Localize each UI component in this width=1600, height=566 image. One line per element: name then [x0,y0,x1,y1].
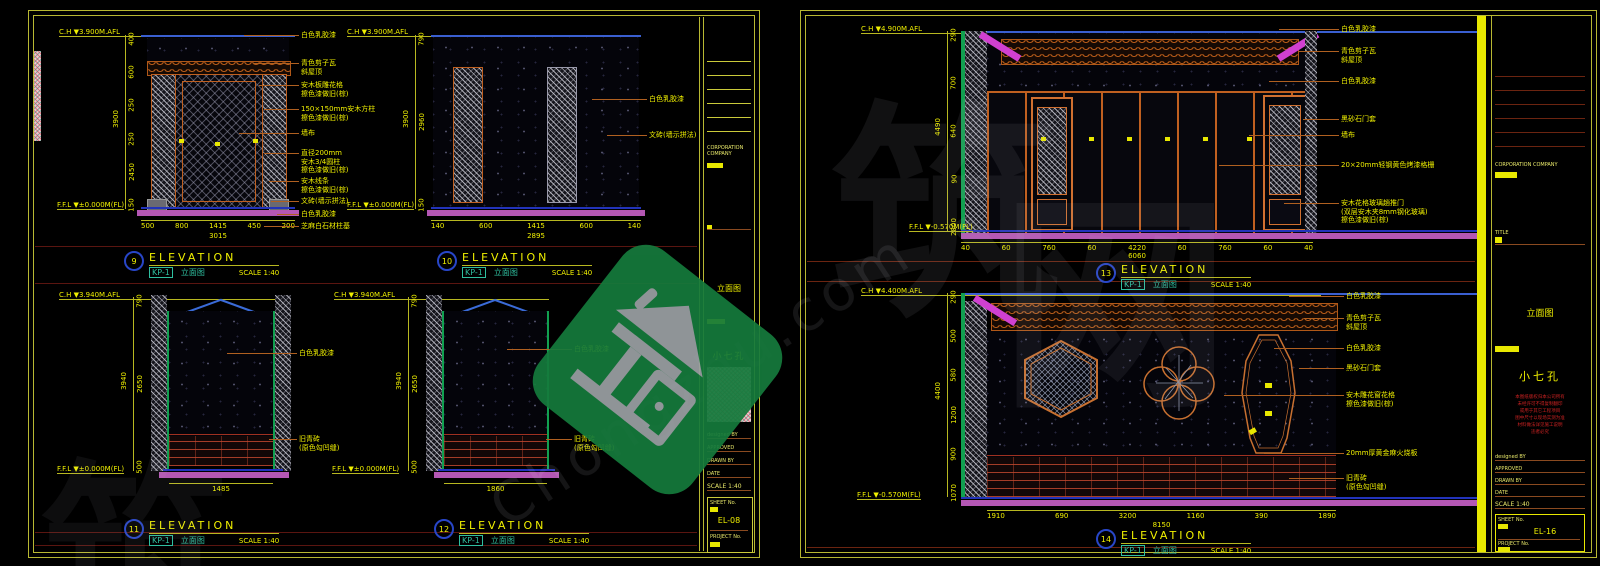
drawing-tag-cn: 立面图 [1153,545,1177,556]
title-label: TITLE [1495,230,1509,236]
field-drawn-by: DRAWN BY [707,458,751,465]
dim-marker [1247,137,1252,141]
tb-line [707,89,751,90]
edge-hatch-strip [34,51,41,141]
hexagon-lattice-window [1021,339,1101,419]
dim-marker [1041,137,1046,141]
scale-label: SCALE 1:40 [239,537,279,545]
level-marker-ffl: F.F.L ▼-0.570M(FL) [909,223,973,232]
dim-value: 290 [950,290,958,303]
floor-line [163,469,283,471]
el11-title: 11 ELEVATION KP-1 立面图 SCALE 1:40 [124,519,279,546]
drawing-number-badge: 14 [1096,529,1116,549]
annotation: 黑砂石门套 [1341,115,1376,124]
tile-frieze [991,303,1338,331]
floor-line [961,497,1477,499]
dim-value: 690 [1055,512,1068,520]
annotation: 白色乳胶漆 [1341,77,1376,86]
annotation: 白色乳胶漆 [649,95,684,104]
dim-value: 790 [411,294,419,307]
dim-value: 60 [1263,244,1272,252]
el14-title: 14 ELEVATION KP-1 立面图 SCALE 1:40 [1096,529,1251,556]
titleblock-right: CORPORATION COMPANY TITLE 立面图 小七孔 本图纸版权归… [1495,16,1590,552]
tb-line [707,131,751,132]
ceiling-band [147,38,289,61]
annotation: 芝麻白石材柱基 [301,222,350,231]
elevation-title: ELEVATION [1121,529,1251,544]
level-line [861,295,1321,296]
dim-value: 800 [175,222,188,230]
wainscot-line [987,455,1336,456]
tb-block [1498,547,1510,551]
drawing-tag: KP-1 [459,535,483,546]
drawing-number-badge: 9 [124,251,144,271]
vertical-dims: 790 2650 500 [133,297,146,471]
base-strip [961,233,1477,239]
column-hatch [965,31,987,237]
dim-value: 1860 [444,485,547,493]
dim-total: 8150 [987,521,1336,529]
floor-line [438,469,555,471]
dim-value: 500 [141,222,154,230]
dim-value: 250 [128,132,136,145]
wall-speckle [169,311,273,436]
wall-speckle [444,311,547,436]
annotation: 青色剪子瓦 斜屋顶 [301,59,336,76]
field-scale: SCALE 1:40 [1495,502,1585,509]
titleblock-left: CORPORATION COMPANY 立面图 小七孔 designed BY … [707,17,755,551]
dim-value: 600 [479,222,492,230]
el9-title: 9 ELEVATION KP-1 立面图 SCALE 1:40 [124,251,279,278]
drawing-tag-cn: 立面图 [181,267,205,278]
logo-gong-stem [598,346,641,396]
dim-line [431,220,641,221]
dim-value: 2800 [950,218,958,236]
sheet-right: C.H ▼4.900M.AFL F.F.L ▼-0.570M(FL) 290 7… [800,10,1597,558]
scale-label: SCALE 1:40 [1211,547,1251,555]
annotation: 墙布 [301,129,315,138]
dim-value: 250 [128,99,136,112]
divider-line [807,261,1475,262]
annotation: 安木花格玻璃趟推门 (双层安木夹8mm钢化玻璃) 擦色漆做旧(棕) [1341,199,1428,225]
drawing-tag-cn: 立面图 [491,535,515,546]
drawing-tag-cn: 立面图 [181,535,205,546]
level-marker-ffl: F.F.L ▼±0.000M(FL) [332,465,399,474]
tb-line [1495,244,1585,245]
vertical-dims: 790 2650 500 [408,297,421,471]
tile-frieze [1001,39,1299,65]
dim-value: 3200 [1119,512,1137,520]
divider-line [35,246,697,247]
dim-value: 900 [950,447,958,460]
tb-block [1495,237,1502,243]
dim-value: 140 [431,222,444,230]
dim-value: 140 [628,222,641,230]
elevation-title: ELEVATION [149,251,279,266]
annotation: 墙布 [1341,131,1355,140]
sheet-no-label: SHEET No. [710,500,736,506]
dim-value: 150 [128,198,136,211]
window-lower-panel [1037,199,1067,225]
project-name: 小七孔 [1495,368,1585,384]
annotation: 白色乳胶漆 [1341,25,1376,34]
sheet-number: EL-08 [708,516,750,525]
level-marker-ffl: F.F.L ▼-0.570M(FL) [857,491,921,500]
drawing-tag: KP-1 [462,267,486,278]
company-name: CORPORATION COMPANY [707,145,751,157]
dim-marker [1089,137,1094,141]
dim-line [169,483,273,484]
tb-block [1495,346,1519,352]
drawing-type-label: 立面图 [1495,306,1585,319]
annotation: 旧青砖 (原色勾凹缝) [1346,474,1386,491]
dim-marker [1165,137,1170,141]
logo-dot-icon [653,400,666,413]
column-hatch [965,301,987,499]
level-marker-ffl: F.F.L ▼±0.000M(FL) [57,465,124,474]
dim-value: 90 [950,175,958,184]
tb-block [710,507,718,512]
elevation-title: ELEVATION [462,251,592,266]
annotation: 安木线条 擦色漆做旧(棕) [301,177,348,194]
brick-wainscot [444,436,547,466]
tb-line [707,117,751,118]
dim-total: 2895 [431,232,641,240]
dim-value: 60 [1178,244,1187,252]
annotation: 直径200mm 安木3/4圆柱 擦色漆做旧(棕) [301,149,348,175]
dim-value: 760 [1042,244,1055,252]
tb-line [707,75,751,76]
dim-total: 4400 [934,382,942,400]
dim-value: 500 [950,330,958,343]
dim-total: 3015 [141,232,295,240]
floor-line [431,207,641,209]
dim-value: 2650 [136,375,144,393]
wainscot-line [169,434,273,435]
tb-line [1495,76,1585,77]
drawing-number-badge: 13 [1096,263,1116,283]
quatrefoil-lattice-window [1141,343,1217,421]
dim-value: 1070 [950,484,958,502]
tb-block [707,163,723,168]
drawing-number-badge: 11 [124,519,144,539]
column-hatch [426,295,442,471]
dim-value: 400 [128,32,136,45]
tb-line [1495,118,1585,119]
sheet-number-box: SHEET No. EL-08 PROJECT No. [707,497,753,553]
field-scale: SCALE 1:40 [707,484,751,491]
dim-value: 500 [136,460,144,473]
scale-label: SCALE 1:40 [1211,281,1251,289]
field-date: DATE [707,471,751,478]
base-strip [159,472,289,478]
drawing-tag: KP-1 [149,535,173,546]
drawing-tag-cn: 立面图 [1153,279,1177,290]
level-marker-ffl: F.F.L ▼±0.000M(FL) [57,201,124,210]
dim-value: 60 [1002,244,1011,252]
dim-marker [1203,137,1208,141]
company-name: CORPORATION COMPANY [1495,162,1585,168]
lattice-window [1263,95,1307,231]
copyright-notes: 本图纸版权归本公司所有 未经许可不得复制翻印 或用于其它工程项目 图中尺寸以现场… [1495,394,1585,436]
field-approved: APPROVED [1495,466,1585,473]
dim-value: 600 [580,222,593,230]
annotation: 青色剪子瓦 斜屋顶 [1346,314,1381,331]
el12-title: 12 ELEVATION KP-1 立面图 SCALE 1:40 [434,519,589,546]
floor-line [961,230,1477,232]
cad-canvas: C.H ▼3.900M.AFL 400 600 250 250 2450 150… [0,0,1600,566]
dim-value: 1160 [1187,512,1205,520]
dim-value: 640 [950,124,958,137]
ceiling-line [961,293,1477,295]
horizontal-dims: 140 600 1415 600 140 [431,222,641,230]
tb-block [710,542,720,547]
base-strip [137,210,299,216]
drawing-tag: KP-1 [1121,279,1145,290]
tb-block [1495,172,1517,178]
wall-hatch-strip [453,67,483,203]
wainscot-line [444,434,547,435]
dim-value: 390 [1255,512,1268,520]
annotation: 文砖(墙示拼法) [649,131,696,140]
annotation: 20×20mm轻钢黄色烤漆格栅 [1341,161,1434,170]
dim-value: 500 [411,460,419,473]
tb-line [1495,90,1585,91]
brick-wainscot [987,457,1336,497]
field-designed-by: designed BY [1495,454,1585,461]
dim-marker [179,139,184,143]
tb-line [707,61,751,62]
dim-total: 3900 [402,110,410,128]
dim-value: 40 [961,244,970,252]
wall-hatch-strip [547,67,577,203]
dim-value: 2450 [128,163,136,181]
dim-value: 150 [418,198,426,211]
annotation: 白色乳胶漆 [1346,344,1381,353]
annotation: 白色乳胶漆 [299,349,334,358]
sheet-no-label: SHEET No. [1498,517,1524,523]
titleblock-separator [1491,16,1492,552]
base-strip [434,472,559,478]
wall-edge-line [273,311,275,471]
dim-value: 790 [136,294,144,307]
logo-box-icon [619,367,698,448]
dim-total: 4490 [934,118,942,136]
vertical-dims: 790 2960 150 [415,35,428,209]
tb-line [707,229,751,230]
brick-wainscot [169,436,273,466]
dim-total: 3940 [395,372,403,390]
base-strip [961,500,1477,506]
tb-line [1495,132,1585,133]
project-no-label: PROJECT No. [710,534,742,540]
dim-total: 6060 [961,252,1313,260]
tb-line [707,103,751,104]
annotation: 安木板雕花格 擦色漆做旧(棕) [301,81,348,98]
dim-value: 2650 [411,375,419,393]
drawing-tag-cn: 立面图 [494,267,518,278]
horizontal-dims: 1910 690 3200 1160 390 1890 [987,512,1336,520]
column-hatch [275,295,291,471]
base-strip [427,210,645,216]
el10-title: 10 ELEVATION KP-1 立面图 SCALE 1:40 [437,251,592,278]
vertical-dims: 290 700 640 90 2800 [947,31,960,231]
drawing-tag: KP-1 [149,267,173,278]
lattice-window [1031,97,1073,231]
dim-line [987,510,1336,511]
dim-line [444,483,547,484]
dim-value: 580 [950,369,958,382]
annotation: 白色乳胶漆 [1346,292,1381,301]
annotation: 文砖(墙示拼法) [301,197,348,206]
tb-line [1498,539,1580,540]
dim-value: 290 [950,28,958,41]
window-glass [1269,105,1301,195]
elevation-title: ELEVATION [459,519,589,534]
level-marker-ffl: F.F.L ▼±0.000M(FL) [347,201,414,210]
dim-line [141,220,295,221]
dim-line [961,242,1313,243]
wall-hatch-panel [261,74,287,209]
dim-value: 600 [128,66,136,79]
wall-hatch-panel [151,74,177,209]
dim-value: 2960 [418,113,426,131]
column-hatch [1305,31,1317,237]
dim-value: 790 [418,32,426,45]
dim-value: 700 [950,76,958,89]
annotation: 白色乳胶漆 [301,31,336,40]
annotation: 150×150mm安木方柱 擦色漆做旧(棕) [301,105,375,122]
window-glass [1037,107,1067,195]
elevation-title: ELEVATION [1121,263,1251,278]
dim-marker [215,142,220,146]
dim-value: 1415 [209,222,227,230]
annotation: 黑砂石门套 [1346,364,1381,373]
sheet-number: EL-16 [1510,527,1580,536]
drawing-tag: KP-1 [1121,545,1145,556]
horizontal-dims: 40 60 760 60 4220 60 760 60 40 [961,244,1313,252]
level-line [59,299,291,300]
dim-value: 4220 [1128,244,1146,252]
dim-value: 1890 [1318,512,1336,520]
dim-value: 60 [1087,244,1096,252]
divider-line [35,283,697,284]
annotation: 旧青砖 (原色勾凹缝) [299,435,339,452]
tb-line [1495,104,1585,105]
column-hatch [151,295,167,471]
dim-value: 1910 [987,512,1005,520]
annotation: 安木雕花窗花格 擦色漆做旧(棕) [1346,391,1395,408]
tb-block [1498,524,1508,529]
elevation-title: ELEVATION [149,519,279,534]
dim-marker [253,139,258,143]
dim-value: 450 [248,222,261,230]
annotation: 20mm厚黄金麻火烧板 [1346,449,1418,458]
dim-marker [1127,137,1132,141]
tb-line [1495,146,1585,147]
drawing-number-badge: 12 [434,519,454,539]
dim-value: 1200 [950,406,958,424]
annotation: 白色乳胶漆 [301,210,336,219]
dim-total: 3940 [120,372,128,390]
dim-total: 3900 [112,110,120,128]
titleblock-bar [1477,16,1486,552]
scale-label: SCALE 1:40 [549,537,589,545]
field-date: DATE [1495,490,1585,497]
dim-value: 760 [1218,244,1231,252]
dim-value: 1485 [169,485,273,493]
tb-line [710,530,748,531]
sheet-number-box: SHEET No. EL-16 PROJECT No. [1495,514,1585,552]
drawing-number-badge: 10 [437,251,457,271]
field-drawn-by: DRAWN BY [1495,478,1585,485]
el13-title: 13 ELEVATION KP-1 立面图 SCALE 1:40 [1096,263,1251,290]
dim-value: 1415 [527,222,545,230]
dim-value: 40 [1304,244,1313,252]
vertical-dims: 400 600 250 250 2450 150 [125,35,138,209]
scale-label: SCALE 1:40 [552,269,592,277]
annotation: 青色剪子瓦 斜屋顶 [1341,47,1376,64]
floor-line [141,207,295,209]
scale-label: SCALE 1:40 [239,269,279,277]
vertical-dims: 290 500 580 1200 900 1070 [947,293,960,497]
